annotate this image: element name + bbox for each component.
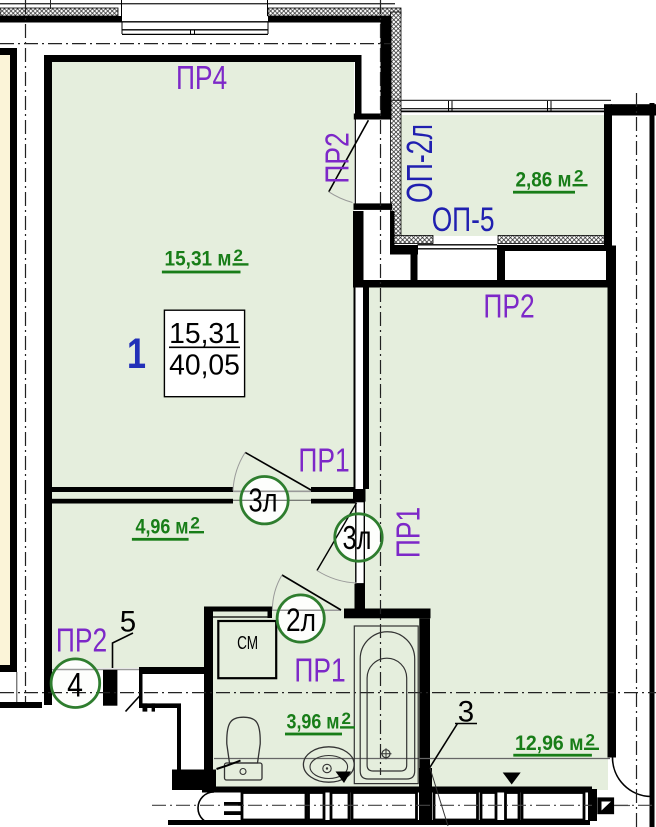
- svg-text:СМ: СМ: [237, 633, 258, 653]
- svg-text:ОП-2л: ОП-2л: [399, 124, 440, 203]
- svg-text:40,05: 40,05: [169, 349, 240, 381]
- svg-text:ПР1: ПР1: [298, 442, 349, 479]
- svg-text:2: 2: [190, 514, 199, 533]
- svg-text:ПР2: ПР2: [483, 288, 534, 325]
- svg-text:4: 4: [67, 666, 83, 704]
- svg-text:4,96 м: 4,96 м: [136, 513, 189, 538]
- svg-text:ПР2: ПР2: [319, 132, 356, 183]
- svg-text:2: 2: [234, 246, 243, 265]
- svg-text:2л: 2л: [286, 602, 316, 638]
- svg-text:15,31 м: 15,31 м: [165, 246, 232, 271]
- svg-text:ПР1: ПР1: [294, 652, 345, 689]
- svg-text:ПР4: ПР4: [176, 59, 227, 96]
- svg-text:2: 2: [342, 709, 351, 728]
- svg-text:ПР2: ПР2: [56, 622, 107, 659]
- svg-text:5: 5: [120, 606, 136, 639]
- svg-text:2,86 м: 2,86 м: [516, 166, 572, 191]
- svg-text:2: 2: [586, 730, 595, 749]
- svg-text:3л: 3л: [249, 482, 278, 519]
- svg-text:3л: 3л: [343, 519, 372, 556]
- svg-text:3,96 м: 3,96 м: [287, 709, 340, 734]
- svg-text:2: 2: [574, 167, 583, 186]
- svg-text:ПР1: ПР1: [390, 507, 427, 558]
- svg-text:1: 1: [127, 330, 146, 378]
- svg-text:12,96 м: 12,96 м: [515, 730, 584, 755]
- svg-text:ОП-5: ОП-5: [432, 201, 495, 239]
- svg-text:15,31: 15,31: [169, 317, 240, 349]
